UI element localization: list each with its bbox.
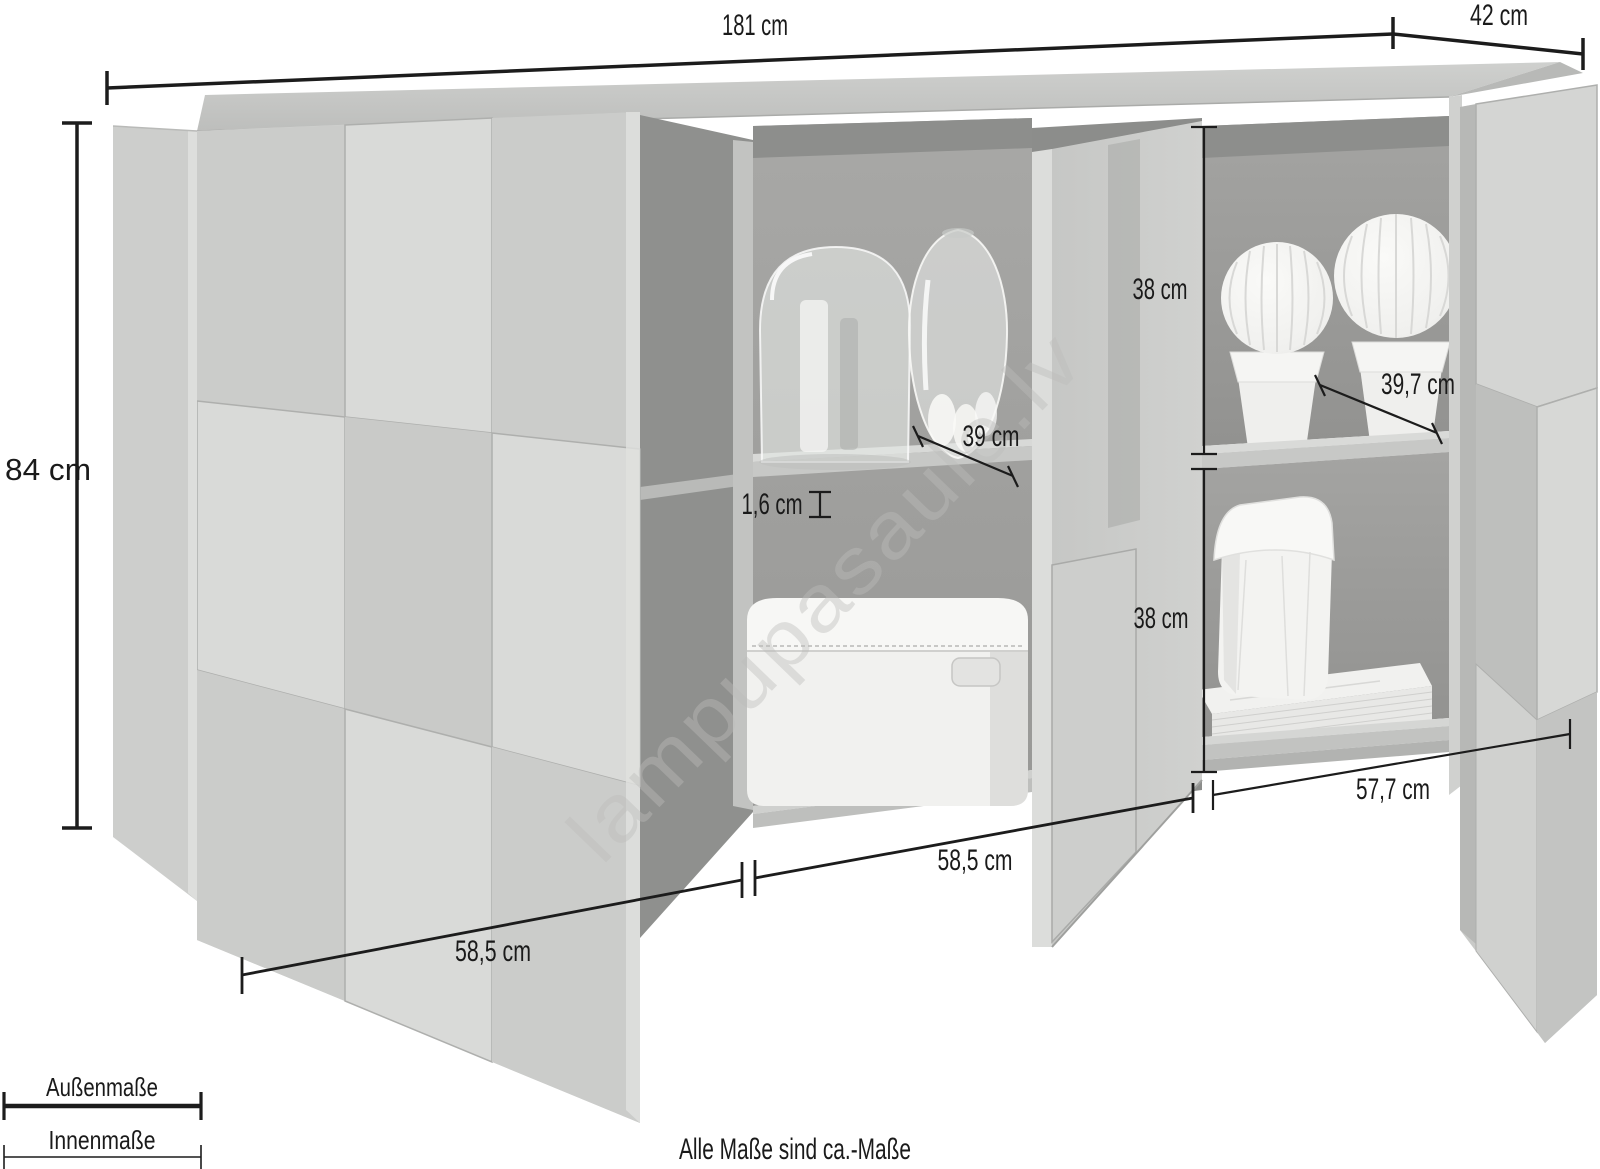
- glass-dome-body: [760, 247, 910, 462]
- dim-label-overall-height: 84 cm: [5, 452, 91, 487]
- box-handle: [952, 658, 1000, 686]
- checker-cell-raised: [345, 709, 492, 1062]
- measurements-note: Alle Maße sind ca.-Maße: [679, 1133, 911, 1166]
- dim-label-overall-depth: 42 cm: [1470, 0, 1528, 32]
- checker-cell: [197, 125, 345, 417]
- glass-dome-inner-shadow: [840, 318, 858, 450]
- open-door-strip: [113, 126, 197, 901]
- right-door-recessed-panel: [1476, 384, 1537, 720]
- dim-label-left-door-width: 58,5 cm: [455, 935, 531, 968]
- glass-dome: [759, 247, 911, 470]
- checker-cell: [345, 417, 492, 747]
- dim-label-middle-depth: 39 cm: [963, 420, 1020, 453]
- cactus-pot-body: [1238, 378, 1316, 448]
- dim-label-right-upper-height: 38 cm: [1133, 273, 1188, 306]
- right-door-raised-panel: [1537, 388, 1597, 720]
- checker-cell-raised: [345, 118, 492, 433]
- dim-label-middle-door-width: 58,5 cm: [938, 844, 1013, 877]
- far-left-open-door: [113, 126, 197, 901]
- right-door-hinge-edge: [1460, 104, 1476, 944]
- middle-door-recessed-band: [1108, 139, 1140, 528]
- glass-dome-reflection: [800, 300, 828, 452]
- paper-bag: [1214, 497, 1334, 700]
- right-door-recessed-panel: [1537, 692, 1597, 1043]
- right-open-door: [1460, 85, 1597, 1043]
- dim-label-right-lower-height: 38 cm: [1134, 602, 1189, 635]
- door-edge-highlight: [626, 112, 640, 1123]
- glass-vase-opening: [942, 228, 974, 238]
- dim-label-overall-width: 181 cm: [722, 9, 788, 42]
- right-door-raised-panel: [1476, 85, 1597, 407]
- dim-label-shelf-thickness: 1,6 cm: [742, 488, 803, 521]
- legend-outer-label: Außenmaße: [46, 1072, 158, 1102]
- checker-cell: [492, 112, 640, 449]
- open-door-strip-edge: [188, 130, 197, 901]
- dim-label-right-inner-width: 57,7 cm: [1356, 773, 1430, 806]
- cactus-pot-rim: [1230, 352, 1324, 382]
- legend-inner-label: Innenmaße: [49, 1125, 156, 1155]
- checker-cell-raised: [197, 401, 345, 709]
- product-dimension-diagram: lampupasaule.lv: [0, 0, 1600, 1169]
- dim-label-right-depth: 39,7 cm: [1381, 368, 1455, 401]
- checker-cell-raised: [492, 433, 640, 786]
